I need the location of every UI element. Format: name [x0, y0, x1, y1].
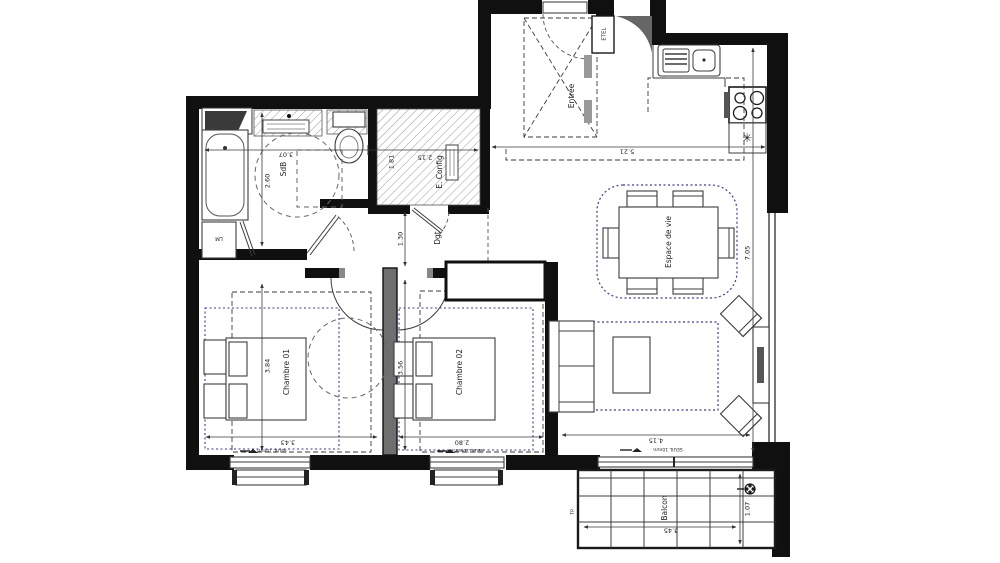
bay-window-living	[598, 457, 753, 467]
chambre1-door-arc	[331, 278, 383, 330]
chambre2-height-dim: 3.56	[397, 361, 405, 375]
svg-text:SEUIL 10mm: SEUIL 10mm	[653, 446, 683, 452]
chambre-02: Chambre 02	[394, 262, 545, 452]
dining-zone: Espace de vie	[597, 185, 737, 298]
vent-unit: ✳	[729, 123, 766, 153]
salon-dotted-zone	[593, 322, 718, 410]
living-room-label: Espace de vie	[664, 216, 673, 268]
balcon-width-dim: 3.45	[664, 527, 678, 535]
e-config-dim-a: 1.81	[388, 155, 396, 169]
svg-text:SEUIL 10mm: SEUIL 10mm	[454, 447, 484, 453]
entree-zone	[524, 2, 652, 137]
seuil-living: SEUIL 10mm	[620, 446, 683, 452]
sofa	[549, 321, 594, 412]
toilet	[333, 112, 365, 163]
balcony: Balcon 3.45 1.07 TP	[570, 470, 775, 548]
e-config-label: E. Config	[435, 155, 444, 189]
nightstand	[204, 384, 226, 418]
sdb-label: SdB	[279, 162, 288, 177]
tp-label: TP	[570, 509, 576, 516]
seuil-chambre1: SEUIL 10mm	[240, 447, 287, 453]
floor-plan-drawing: ✳ Espace de vie	[0, 0, 1000, 563]
svg-text:SEUIL 10mm: SEUIL 10mm	[257, 447, 287, 453]
living-bottom-dim: 4.15	[649, 437, 663, 445]
entree-label: Entrée	[567, 83, 576, 108]
coffee-table	[613, 337, 650, 393]
bed-chambre1	[226, 338, 306, 420]
e-config-dim-b: 2.15	[418, 154, 432, 162]
wardrobe	[446, 262, 545, 300]
floor-plan-canvas: ✳ Espace de vie	[0, 0, 1000, 563]
window-chambre2	[430, 457, 504, 485]
bathtub	[202, 130, 248, 220]
tv-console	[753, 327, 769, 403]
nightstand	[204, 340, 226, 374]
vanity-dot	[287, 114, 291, 118]
salon-zone	[549, 295, 769, 436]
balcon-depth-dim: 1.07	[744, 502, 752, 516]
sdb-height-dim: 2.60	[264, 174, 272, 188]
chambre2-label: Chambre 02	[455, 349, 464, 395]
kitchen-sink	[658, 45, 720, 76]
chambre1-height-dim: 3.84	[264, 359, 272, 373]
chambre-01: Chambre 01	[204, 292, 388, 452]
chambre2-width-dim: 2.80	[455, 439, 469, 447]
chambre1-width-dim: 3.43	[281, 439, 295, 447]
vanity-label-box	[263, 120, 309, 133]
dgt-label: Dgt	[433, 231, 442, 245]
lm-label: LM	[215, 235, 223, 241]
turning-circle-chambre1	[308, 318, 388, 398]
nightstand	[394, 384, 413, 418]
living-top-dim: 5.21	[620, 148, 634, 156]
sdb-width-dim: 3.07	[279, 151, 293, 159]
bed-chambre2	[413, 338, 495, 420]
fan-icon: ✳	[742, 131, 752, 145]
bathroom-door-arc	[336, 215, 354, 251]
living-height-dim: 7.05	[744, 246, 752, 260]
entry-door-leaf	[543, 2, 587, 13]
dgt-width-dim: 1.30	[397, 232, 405, 246]
window-chambre1	[230, 457, 310, 485]
entry-door-arc	[543, 14, 588, 59]
coat-nook	[616, 16, 652, 53]
balcon-label: Balcon	[660, 495, 669, 521]
etel-label: ETEL	[602, 27, 608, 40]
stove	[724, 87, 766, 123]
chambre1-label: Chambre 01	[282, 349, 291, 395]
